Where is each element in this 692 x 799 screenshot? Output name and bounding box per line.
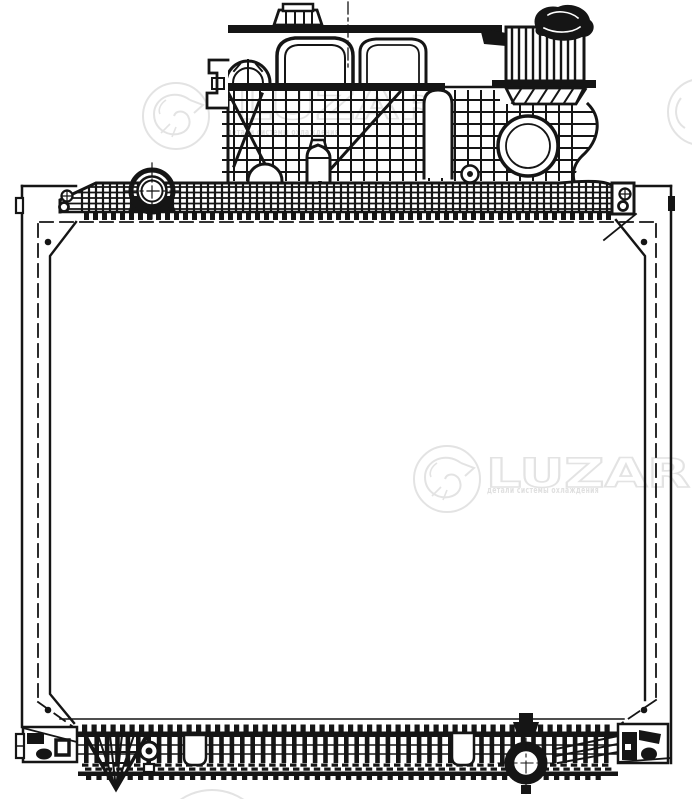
generated-detail — [137, 768, 143, 771]
generated-detail — [263, 776, 268, 780]
generated-detail — [585, 776, 590, 780]
generated-detail — [581, 764, 587, 767]
generated-detail — [404, 764, 410, 767]
generated-detail — [95, 768, 101, 771]
generated-detail — [339, 725, 344, 733]
generated-detail — [309, 212, 314, 220]
generated-detail — [491, 768, 497, 771]
generated-detail — [376, 768, 382, 771]
generated-detail — [415, 764, 421, 767]
generated-detail — [190, 776, 195, 780]
generated-detail — [158, 768, 164, 771]
generated-detail — [155, 764, 161, 767]
generated-detail — [130, 725, 135, 733]
generated-detail — [234, 725, 239, 733]
generated-detail — [225, 725, 230, 733]
side-tab — [668, 196, 675, 211]
generated-detail — [293, 768, 299, 771]
generated-detail — [303, 768, 309, 771]
generated-detail — [584, 768, 590, 771]
generated-detail — [489, 212, 494, 220]
generated-detail — [284, 776, 289, 780]
generated-detail — [96, 776, 101, 780]
generated-detail — [149, 725, 154, 733]
generated-detail — [595, 768, 601, 771]
generated-detail — [560, 764, 566, 767]
generated-detail — [168, 725, 173, 733]
generated-detail — [159, 776, 164, 780]
generated-detail — [134, 764, 140, 767]
generated-detail — [262, 768, 268, 771]
generated-detail — [595, 725, 600, 733]
generated-detail — [408, 776, 413, 780]
generated-detail — [92, 764, 98, 767]
generated-detail — [602, 764, 608, 767]
generated-detail — [354, 212, 359, 220]
generated-detail — [189, 768, 195, 771]
generated-detail — [82, 725, 87, 733]
generated-detail — [477, 764, 483, 767]
generated-detail — [311, 764, 317, 767]
generated-detail — [323, 737, 328, 763]
generated-detail — [367, 725, 372, 733]
generated-detail — [290, 764, 296, 767]
generated-detail — [242, 776, 247, 780]
generated-detail — [571, 764, 577, 767]
generated-detail — [294, 776, 299, 780]
generated-detail — [352, 764, 358, 767]
generated-detail — [429, 776, 434, 780]
generated-detail — [444, 212, 449, 220]
generated-detail — [396, 725, 401, 733]
generated-detail — [561, 212, 566, 220]
generated-detail — [207, 764, 213, 767]
generated-detail — [470, 768, 476, 771]
generated-detail — [240, 737, 245, 763]
generated-detail — [366, 768, 372, 771]
generated-detail — [488, 764, 494, 767]
generated-detail — [492, 776, 497, 780]
pressure-cap — [480, 5, 596, 104]
generated-detail — [273, 212, 278, 220]
generated-detail — [367, 776, 372, 780]
generated-detail — [481, 776, 486, 780]
generated-detail — [93, 212, 98, 220]
generated-detail — [570, 212, 575, 220]
generated-detail — [120, 725, 125, 733]
bottom-scallop — [248, 164, 282, 181]
generated-detail — [313, 737, 318, 763]
generated-detail — [500, 737, 505, 763]
generated-detail — [335, 768, 341, 771]
side-tab — [16, 198, 23, 213]
generated-detail — [314, 768, 320, 771]
generated-detail — [604, 737, 609, 763]
generated-detail — [354, 737, 359, 763]
generated-detail — [388, 776, 393, 780]
radiator-technical-drawing: LUZAR детали системы охлаждения LUZAR де… — [0, 0, 692, 799]
generated-detail — [592, 764, 598, 767]
generated-detail — [315, 776, 320, 780]
generated-detail — [241, 768, 247, 771]
generated-detail — [417, 737, 422, 763]
generated-detail — [471, 212, 476, 220]
generated-detail — [282, 725, 287, 733]
generated-detail — [439, 768, 445, 771]
generated-detail — [251, 768, 257, 771]
generated-detail — [199, 768, 205, 771]
generated-detail — [85, 768, 91, 771]
generated-detail — [355, 768, 361, 771]
luzar-dragon-logo — [143, 83, 209, 149]
generated-detail — [272, 725, 277, 733]
generated-detail — [219, 737, 224, 763]
generated-detail — [381, 212, 386, 220]
generated-detail — [579, 212, 584, 220]
generated-detail — [250, 737, 255, 763]
generated-detail — [562, 737, 567, 763]
luzar-dragon-logo-partial — [668, 79, 692, 145]
watermark-tagline-text: детали системы охлаждения — [487, 486, 599, 496]
generated-detail — [363, 212, 368, 220]
drawing-svg: LUZAR детали системы охлаждения LUZAR де… — [0, 0, 692, 799]
generated-detail — [102, 212, 107, 220]
generated-detail — [158, 725, 163, 733]
tank-side-bracket — [207, 60, 228, 108]
generated-detail — [178, 737, 183, 763]
generated-detail — [177, 725, 182, 733]
generated-detail — [557, 725, 562, 733]
generated-detail — [453, 212, 458, 220]
generated-detail — [210, 768, 216, 771]
generated-detail — [396, 737, 401, 763]
generated-detail — [86, 776, 91, 780]
generated-detail — [446, 764, 452, 767]
generated-detail — [407, 768, 413, 771]
band-plate — [184, 735, 206, 765]
generated-detail — [259, 764, 265, 767]
generated-detail — [320, 725, 325, 733]
generated-detail — [586, 725, 591, 733]
generated-detail — [300, 764, 306, 767]
generated-detail — [120, 212, 125, 220]
generated-detail — [459, 768, 465, 771]
generated-detail — [480, 212, 485, 220]
generated-detail — [304, 776, 309, 780]
generated-detail — [272, 768, 278, 771]
generated-detail — [310, 725, 315, 733]
generated-detail — [111, 212, 116, 220]
generated-detail — [436, 764, 442, 767]
generated-detail — [129, 212, 134, 220]
generated-detail — [217, 764, 223, 767]
generated-detail — [550, 764, 556, 767]
generated-detail — [440, 776, 445, 780]
generated-detail — [427, 737, 432, 763]
generated-detail — [394, 764, 400, 767]
generated-detail — [443, 725, 448, 733]
generated-detail — [283, 768, 289, 771]
generated-detail — [230, 737, 235, 763]
generated-detail — [206, 725, 211, 733]
generated-detail — [237, 212, 242, 220]
generated-detail — [386, 737, 391, 763]
generated-detail — [384, 764, 390, 767]
generated-detail — [390, 212, 395, 220]
generated-detail — [246, 212, 251, 220]
tank-left-dome — [226, 60, 270, 83]
generated-detail — [200, 776, 205, 780]
generated-detail — [348, 725, 353, 733]
generated-detail — [282, 212, 287, 220]
generated-detail — [148, 776, 153, 780]
generated-detail — [220, 768, 226, 771]
generated-detail — [552, 212, 557, 220]
generated-detail — [373, 764, 379, 767]
generated-detail — [386, 725, 391, 733]
generated-detail — [377, 725, 382, 733]
generated-detail — [138, 776, 143, 780]
generated-detail — [375, 737, 380, 763]
luzar-dragon-logo — [414, 446, 480, 512]
generated-detail — [165, 212, 170, 220]
generated-detail — [211, 776, 216, 780]
generated-detail — [253, 725, 258, 733]
generated-detail — [553, 768, 559, 771]
generated-detail — [291, 212, 296, 220]
generated-detail — [575, 776, 580, 780]
filler-cap-left — [274, 4, 322, 25]
generated-detail — [415, 725, 420, 733]
generated-detail — [111, 725, 116, 733]
generated-detail — [358, 725, 363, 733]
generated-detail — [434, 725, 439, 733]
generated-detail — [139, 725, 144, 733]
generated-detail — [606, 212, 611, 220]
generated-detail — [544, 776, 549, 780]
cap-boss-circle — [498, 116, 558, 176]
generated-detail — [228, 212, 233, 220]
generated-detail — [500, 725, 505, 733]
generated-detail — [450, 776, 455, 780]
generated-detail — [481, 725, 486, 733]
generated-detail — [460, 776, 465, 780]
generated-detail — [261, 737, 266, 763]
generated-detail — [271, 737, 276, 763]
generated-detail — [252, 776, 257, 780]
generated-detail — [318, 212, 323, 220]
generated-detail — [490, 737, 495, 763]
generated-detail — [291, 725, 296, 733]
generated-detail — [428, 768, 434, 771]
generated-detail — [327, 212, 332, 220]
generated-detail — [167, 737, 172, 763]
generated-detail — [345, 768, 351, 771]
generated-detail — [510, 725, 515, 733]
tank-slot-channel — [424, 90, 452, 178]
generated-detail — [248, 764, 254, 767]
generated-detail — [324, 768, 330, 771]
generated-detail — [387, 768, 393, 771]
tank-top-rim — [228, 25, 502, 33]
right-band-end — [612, 183, 634, 214]
generated-detail — [449, 768, 455, 771]
generated-detail — [377, 776, 382, 780]
mounting-bracket-right — [618, 724, 671, 763]
generated-detail — [219, 212, 224, 220]
generated-detail — [563, 768, 569, 771]
bottom-tank — [16, 713, 671, 794]
luzar-dragon-logo-partial — [156, 790, 268, 799]
generated-detail — [232, 776, 237, 780]
generated-detail — [84, 212, 89, 220]
generated-detail — [588, 212, 593, 220]
generated-detail — [215, 725, 220, 733]
generated-detail — [507, 212, 512, 220]
generated-detail — [596, 776, 601, 780]
generated-detail — [138, 212, 143, 220]
generated-detail — [231, 768, 237, 771]
generated-detail — [498, 764, 504, 767]
generated-detail — [244, 725, 249, 733]
generated-detail — [176, 764, 182, 767]
generated-detail — [363, 764, 369, 767]
generated-detail — [576, 725, 581, 733]
generated-detail — [554, 776, 559, 780]
generated-detail — [201, 212, 206, 220]
generated-detail — [179, 768, 185, 771]
generated-detail — [548, 725, 553, 733]
generated-detail — [174, 212, 179, 220]
generated-detail — [336, 776, 341, 780]
generated-detail — [238, 764, 244, 767]
inlet-port — [124, 163, 180, 219]
band-plate — [452, 733, 474, 765]
generated-detail — [462, 212, 467, 220]
generated-detail — [408, 212, 413, 220]
generated-detail — [597, 212, 602, 220]
generated-detail — [128, 776, 133, 780]
generated-detail — [534, 212, 539, 220]
generated-detail — [342, 764, 348, 767]
mounting-bracket-left — [16, 727, 77, 762]
generated-detail — [418, 768, 424, 771]
generated-detail — [472, 725, 477, 733]
generated-detail — [435, 212, 440, 220]
generated-detail — [264, 212, 269, 220]
generated-detail — [605, 725, 610, 733]
generated-detail — [399, 212, 404, 220]
generated-detail — [453, 725, 458, 733]
generated-detail — [345, 212, 350, 220]
generated-detail — [228, 764, 234, 767]
generated-detail — [498, 212, 503, 220]
generated-detail — [210, 212, 215, 220]
generated-detail — [356, 776, 361, 780]
generated-detail — [168, 768, 174, 771]
generated-detail — [300, 212, 305, 220]
generated-detail — [269, 764, 275, 767]
generated-detail — [372, 212, 377, 220]
generated-detail — [406, 737, 411, 763]
generated-detail — [329, 725, 334, 733]
generated-detail — [365, 737, 370, 763]
generated-detail — [325, 776, 330, 780]
generated-detail — [334, 737, 339, 763]
generated-detail — [209, 737, 214, 763]
generated-detail — [564, 776, 569, 780]
generated-detail — [605, 768, 611, 771]
generated-detail — [336, 212, 341, 220]
generated-detail — [346, 776, 351, 780]
generated-detail — [438, 737, 443, 763]
generated-detail — [82, 764, 88, 767]
generated-detail — [417, 212, 422, 220]
generated-detail — [480, 768, 486, 771]
generated-detail — [471, 776, 476, 780]
generated-detail — [169, 776, 174, 780]
generated-detail — [419, 776, 424, 780]
generated-detail — [525, 212, 530, 220]
generated-detail — [332, 764, 338, 767]
generated-detail — [292, 737, 297, 763]
float-sensor — [307, 140, 330, 181]
generated-detail — [462, 725, 467, 733]
generated-detail — [282, 737, 287, 763]
generated-detail — [574, 768, 580, 771]
generated-detail — [92, 725, 97, 733]
generated-detail — [221, 776, 226, 780]
generated-detail — [302, 737, 307, 763]
generated-detail — [567, 725, 572, 733]
generated-detail — [187, 725, 192, 733]
generated-detail — [192, 212, 197, 220]
generated-detail — [255, 212, 260, 220]
generated-detail — [344, 737, 349, 763]
generated-detail — [516, 212, 521, 220]
generated-detail — [321, 764, 327, 767]
generated-detail — [263, 725, 268, 733]
generated-detail — [425, 764, 431, 767]
generated-detail — [180, 776, 185, 780]
generated-detail — [165, 764, 171, 767]
generated-detail — [538, 725, 543, 733]
generated-detail — [479, 737, 484, 763]
generated-detail — [101, 725, 106, 733]
generated-detail — [398, 776, 403, 780]
generated-detail — [491, 725, 496, 733]
generated-detail — [424, 725, 429, 733]
generated-detail — [502, 776, 507, 780]
generated-detail — [543, 212, 548, 220]
generated-detail — [183, 212, 188, 220]
generated-detail — [196, 725, 201, 733]
generated-detail — [405, 725, 410, 733]
generated-detail — [273, 776, 278, 780]
generated-detail — [426, 212, 431, 220]
generated-detail — [397, 768, 403, 771]
generated-detail — [301, 725, 306, 733]
generated-detail — [280, 764, 286, 767]
